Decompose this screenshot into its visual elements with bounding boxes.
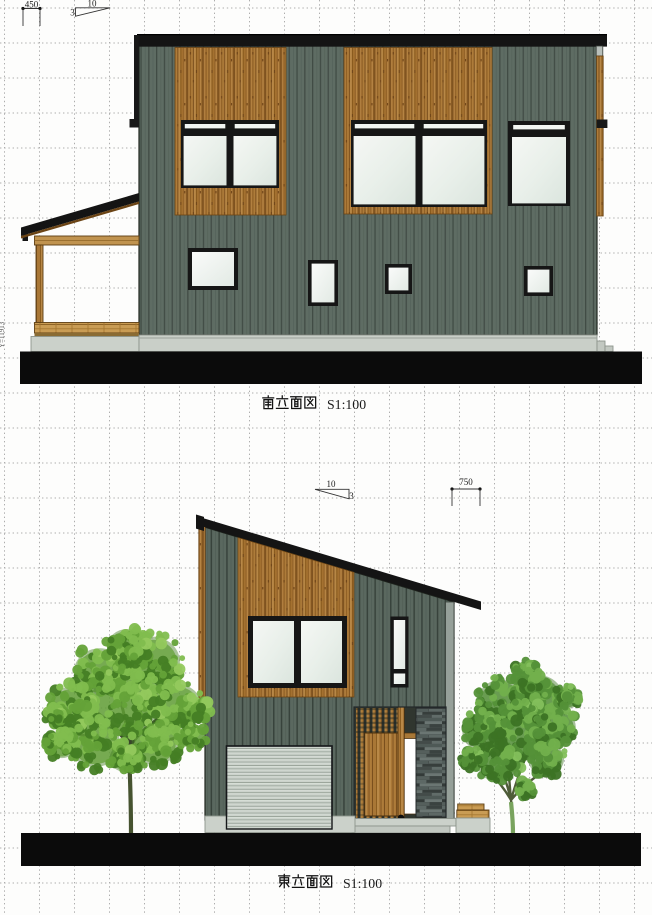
svg-text:10: 10 <box>327 479 337 489</box>
svg-text:3: 3 <box>349 491 354 501</box>
svg-text:S1:100: S1:100 <box>327 397 366 412</box>
svg-text:S1:100: S1:100 <box>343 876 382 891</box>
svg-text:750: 750 <box>459 477 473 487</box>
svg-text:3: 3 <box>70 8 75 18</box>
svg-text:Y=11913: Y=11913 <box>0 321 6 348</box>
svg-text:10: 10 <box>88 0 98 9</box>
